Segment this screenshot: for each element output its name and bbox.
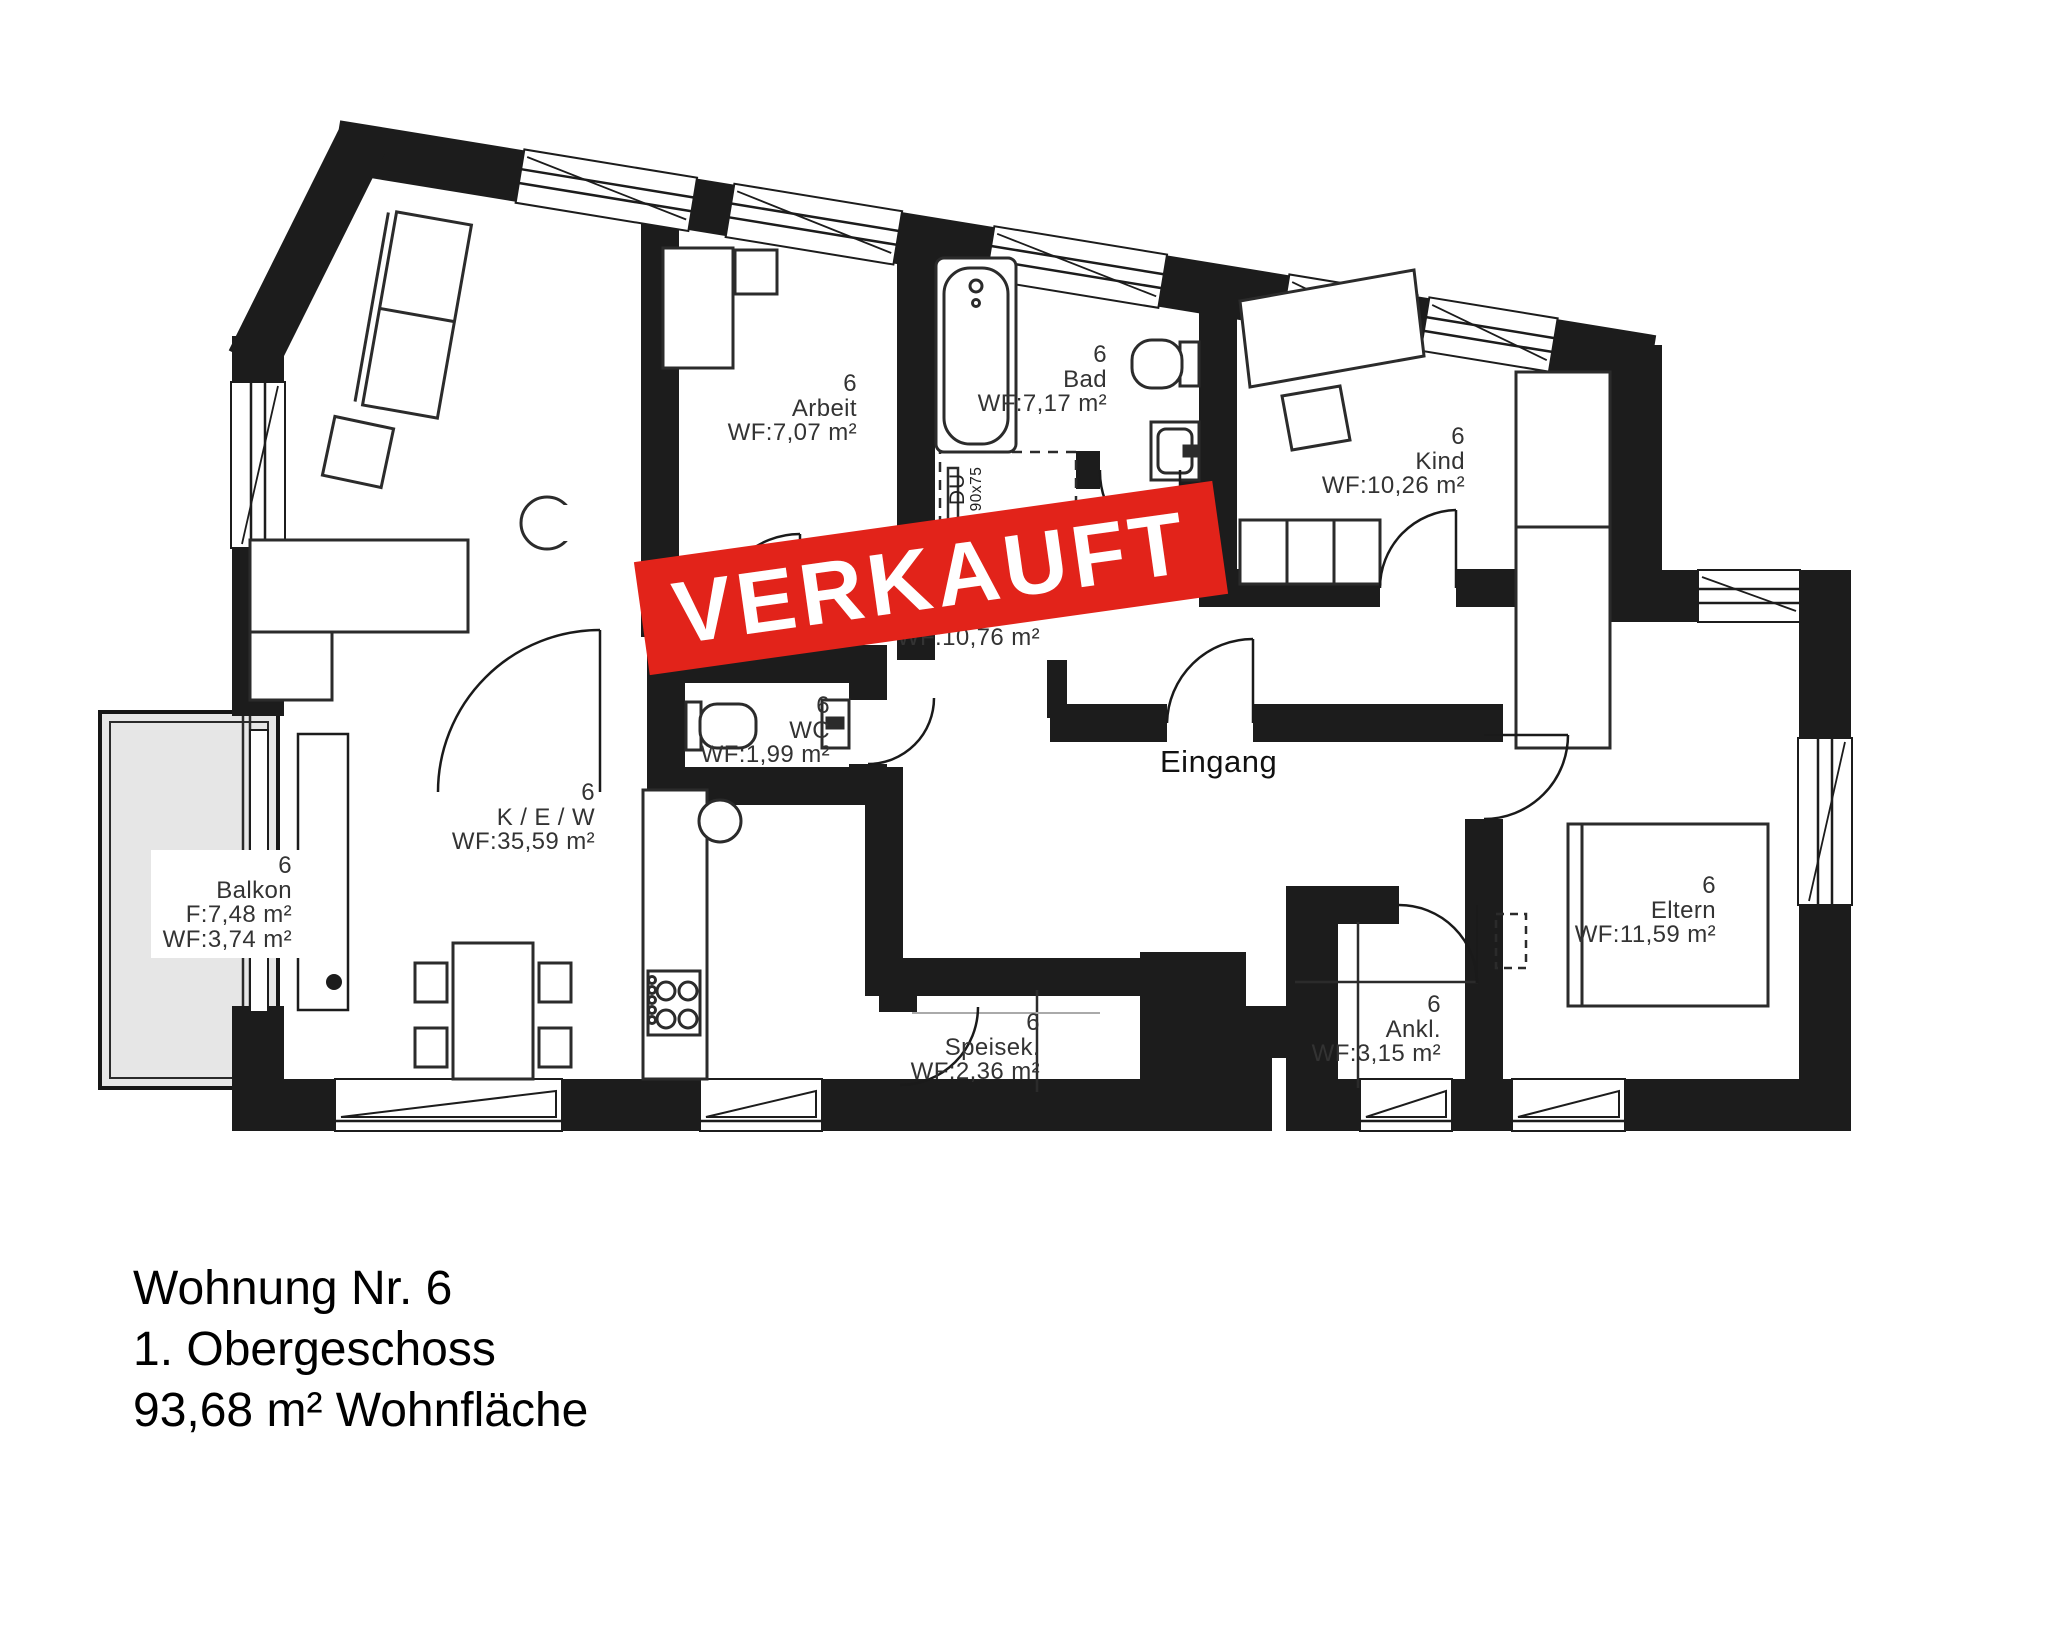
room-area: WF:2,36 m²: [911, 1060, 1040, 1085]
shower-label: DU 90x75: [947, 467, 985, 512]
room-label-kind: 6 Kind WF:10,26 m²: [1322, 425, 1465, 499]
room-label-eltern: 6 Eltern WF:11,59 m²: [1575, 874, 1716, 948]
floorplan-page: 6 Arbeit WF:7,07 m² 6 Bad WF:7,17 m² 6 K…: [0, 0, 2048, 1632]
child-desk: [1240, 270, 1424, 450]
room-name: Bad: [978, 368, 1107, 393]
room-number: 6: [728, 372, 857, 397]
room-name: Kind: [1322, 450, 1465, 475]
side-table: [322, 416, 393, 487]
room-label-balkon: 6 Balkon F:7,48 m² WF:3,74 m²: [151, 850, 300, 958]
room-area: WF:1,99 m²: [701, 743, 830, 768]
room-number: 6: [1575, 874, 1716, 899]
room-number: 6: [1312, 993, 1441, 1018]
area-title: 93,68 m² Wohnfläche: [133, 1380, 588, 1441]
child-door: [1380, 510, 1456, 588]
dining-table: [415, 943, 571, 1079]
room-name: Eltern: [1575, 899, 1716, 924]
entrance-label: Eingang: [1160, 744, 1277, 780]
room-name: Arbeit: [728, 397, 857, 422]
room-area: WF:7,17 m²: [978, 392, 1107, 417]
lamp-symbol: [521, 497, 585, 549]
room-name: WC: [701, 719, 830, 744]
room-area: WF:7,07 m²: [728, 421, 857, 446]
sectional-sofa: [250, 540, 468, 700]
bath-sink: [1151, 422, 1199, 480]
room-label-wc: 6 WC WF:1,99 m²: [701, 694, 830, 768]
room-label-bad: 6 Bad WF:7,17 m²: [978, 343, 1107, 417]
living-room-door: [438, 630, 600, 792]
room-number: 6: [452, 781, 595, 806]
room-label-arbeit: 6 Arbeit WF:7,07 m²: [728, 372, 857, 446]
room-number: 6: [978, 343, 1107, 368]
room-name: Speisek.: [911, 1036, 1040, 1061]
floor-title: 1. Obergeschoss: [133, 1319, 588, 1380]
title-block: Wohnung Nr. 6 1. Obergeschoss 93,68 m² W…: [133, 1258, 588, 1441]
wc-door: [868, 698, 934, 764]
room-name: K / E / W: [452, 806, 595, 831]
bath-toilet: [1132, 340, 1199, 388]
shower-type: DU: [947, 467, 969, 512]
kitchen-counter: [643, 790, 741, 1079]
room-name: Ankl.: [1312, 1018, 1441, 1043]
study-desk: [663, 248, 777, 368]
room-number: 6: [1322, 425, 1465, 450]
child-wardrobe: [1240, 520, 1380, 584]
entrance-door: [1167, 639, 1253, 723]
room-area: WF:35,59 m²: [452, 830, 595, 855]
room-label-speisekammer: 6 Speisek. WF:2,36 m²: [911, 1011, 1040, 1085]
room-area: WF:11,59 m²: [1575, 923, 1716, 948]
room-name: Balkon: [163, 879, 292, 904]
room-label-ankleide: 6 Ankl. WF:3,15 m²: [1312, 993, 1441, 1067]
room-area: F:7,48 m²: [163, 903, 292, 928]
sofa: [355, 211, 472, 419]
room-area: WF:3,15 m²: [1312, 1042, 1441, 1067]
room-number: 6: [911, 1011, 1040, 1036]
apartment-title: Wohnung Nr. 6: [133, 1258, 588, 1319]
shower-size: 90x75: [969, 467, 985, 512]
child-bed: [1516, 372, 1610, 748]
room-label-kew: 6 K / E / W WF:35,59 m²: [452, 781, 595, 855]
room-number: 6: [163, 854, 292, 879]
room-area: WF:10,26 m²: [1322, 474, 1465, 499]
room-number: 6: [701, 694, 830, 719]
room-area-2: WF:3,74 m²: [163, 928, 292, 953]
